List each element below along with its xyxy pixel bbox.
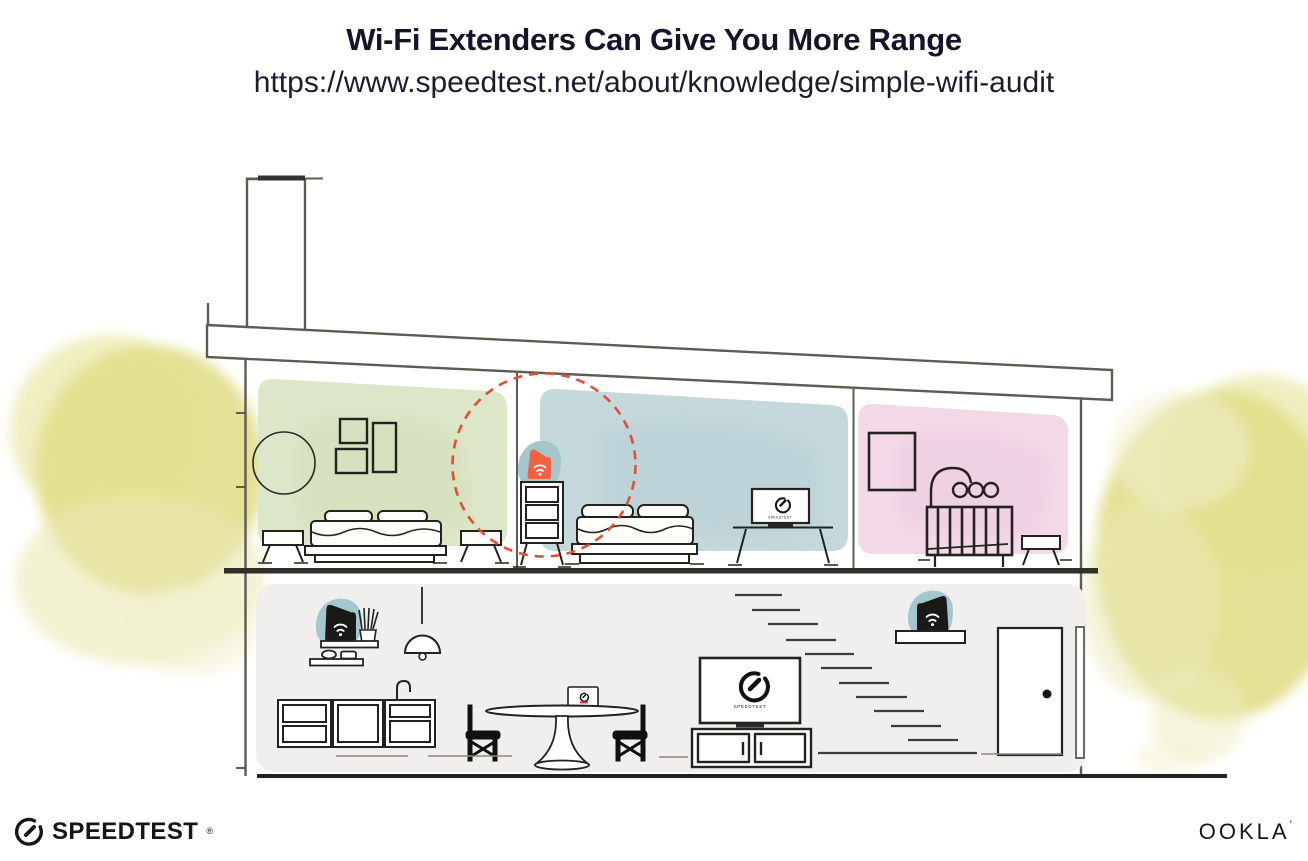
speedtest-logo-text: SPEEDTEST: [52, 818, 198, 846]
room-bedroom-left: [253, 379, 509, 563]
living-tv: SPEEDTEST: [692, 658, 811, 767]
living-tv-label: SPEEDTEST: [734, 704, 767, 709]
room-bedroom-middle: SPEEDTEST: [513, 389, 848, 567]
trademark-tick: ’: [1290, 819, 1292, 831]
source-url: https://www.speedtest.net/about/knowledg…: [0, 66, 1308, 100]
ground-line: [257, 774, 1227, 778]
ookla-logo: OOKLA’: [1199, 819, 1292, 845]
media-console: [692, 729, 811, 767]
nightstand-right: [461, 531, 501, 562]
watercolor-foliage-left: [10, 335, 265, 675]
floor-slab: [224, 568, 1098, 574]
nightstand-left: [263, 531, 303, 562]
door-trim: [1076, 627, 1084, 758]
chimney: [246, 176, 323, 332]
watercolor-foliage-right: [1080, 375, 1308, 773]
speedtest-logo: SPEEDTEST®: [14, 817, 213, 847]
bedroom-tv-label: SPEEDTEST: [768, 516, 792, 520]
house-illustration: SPEEDTEST: [0, 0, 1308, 861]
room-nursery: [858, 404, 1072, 567]
entry-door: [998, 628, 1062, 755]
ookla-logo-text: OOKLA: [1199, 819, 1290, 844]
infographic-page: Wi-Fi Extenders Can Give You More Range …: [0, 0, 1308, 861]
registered-mark: ®: [206, 826, 213, 836]
header: Wi-Fi Extenders Can Give You More Range …: [0, 22, 1308, 100]
speedtest-gauge-icon: [14, 817, 44, 847]
door-knob: [1043, 690, 1052, 699]
room-living-area: SPEEDTEST: [256, 584, 1086, 772]
page-title: Wi-Fi Extenders Can Give You More Range: [0, 22, 1308, 58]
